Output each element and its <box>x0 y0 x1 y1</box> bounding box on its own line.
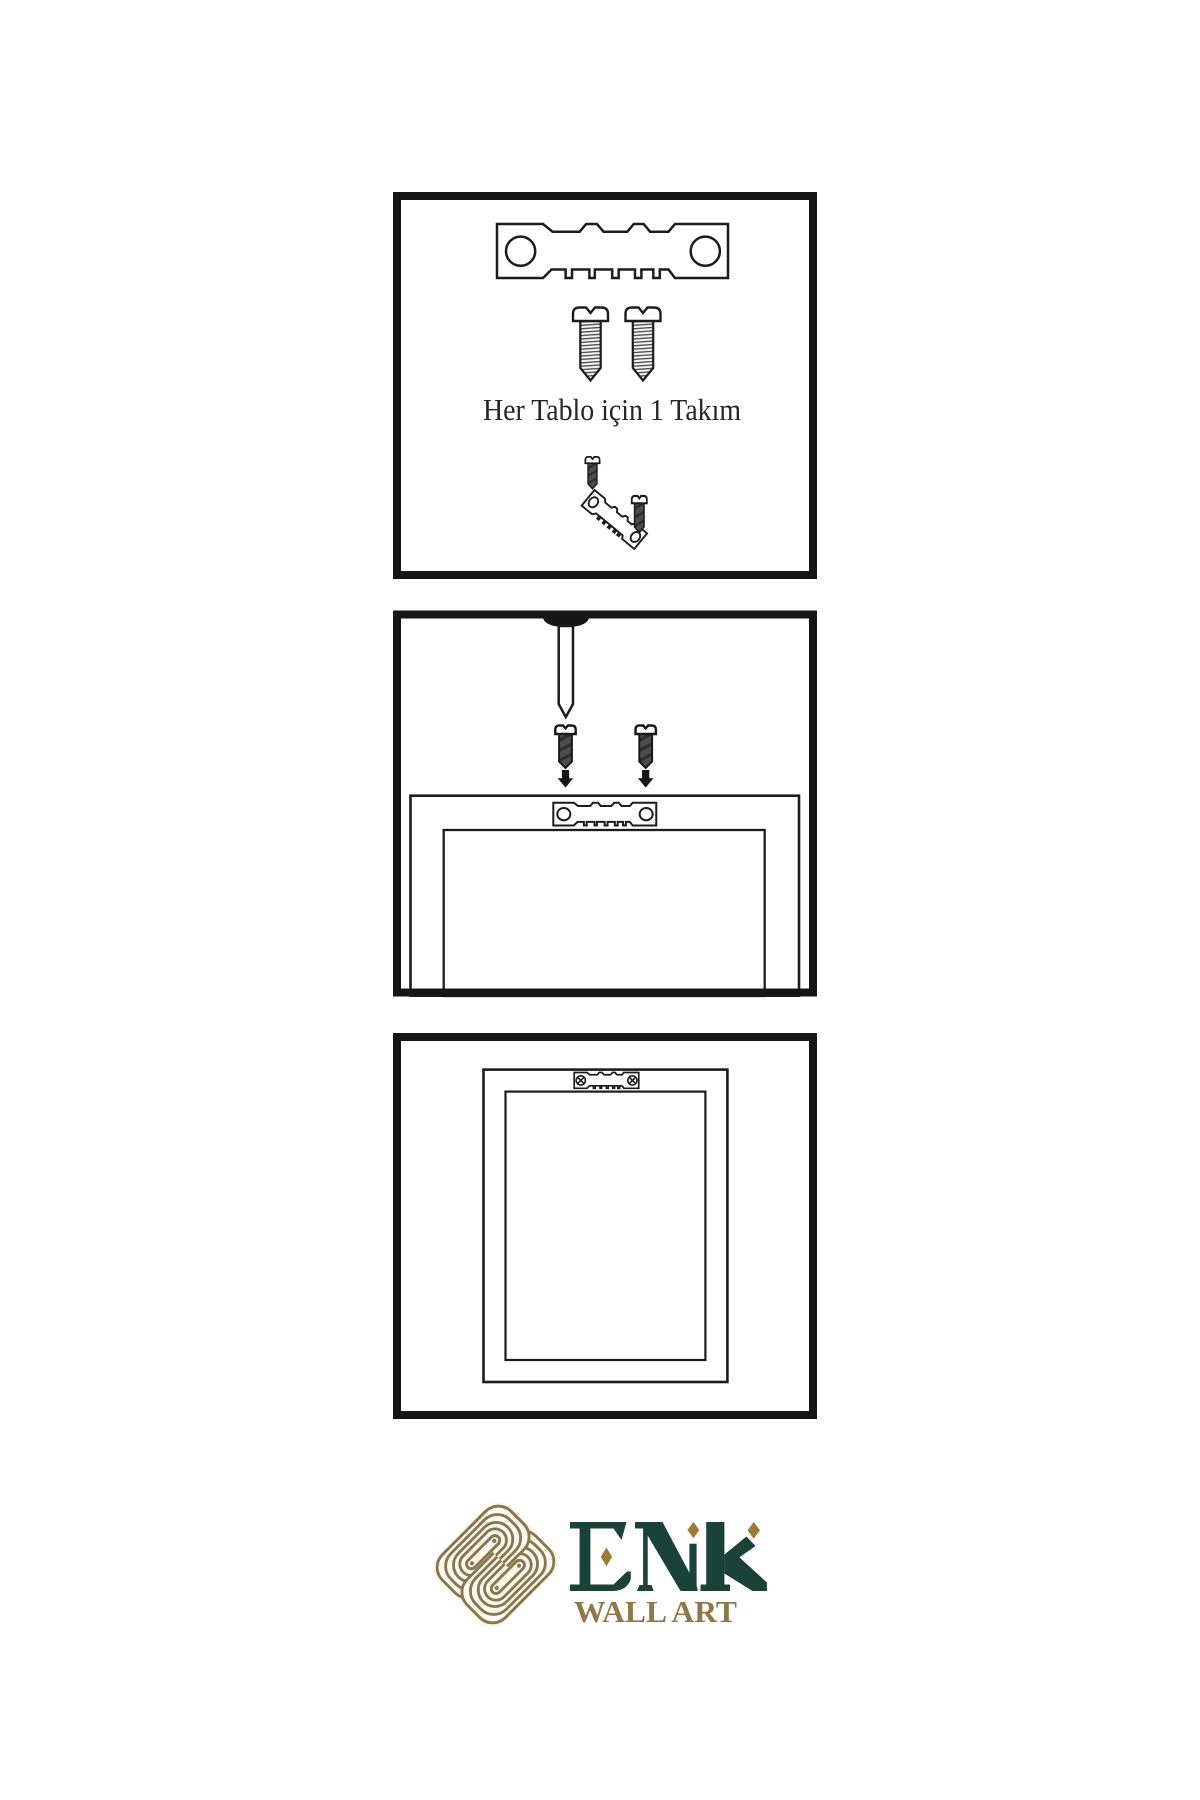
svg-text:Her Tablo için 1 Takım: Her Tablo için 1 Takım <box>483 392 741 427</box>
svg-text:WALL ART: WALL ART <box>574 1594 737 1629</box>
